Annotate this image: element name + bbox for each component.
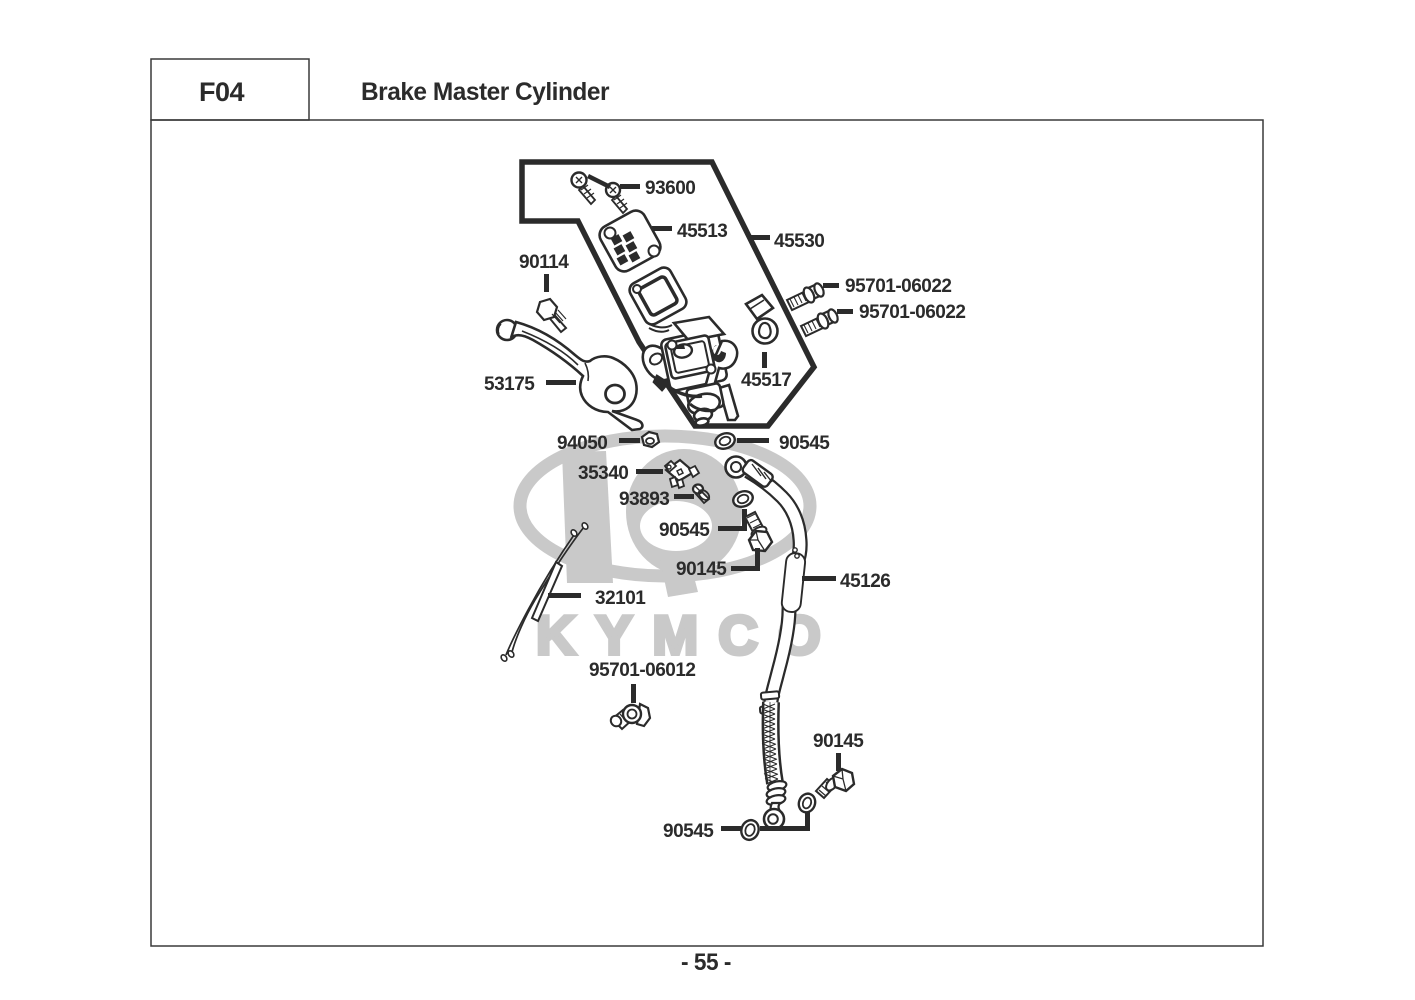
svg-text:35340: 35340 — [578, 463, 628, 484]
svg-text:95701-06022: 95701-06022 — [859, 302, 966, 323]
svg-text:90114: 90114 — [519, 252, 569, 273]
svg-text:53175: 53175 — [484, 374, 535, 395]
svg-text:95701-06012: 95701-06012 — [589, 660, 696, 681]
svg-text:95701-06022: 95701-06022 — [845, 276, 952, 297]
svg-text:F04: F04 — [199, 77, 245, 107]
svg-text:45513: 45513 — [677, 221, 727, 242]
svg-text:93600: 93600 — [645, 178, 695, 199]
svg-text:45517: 45517 — [741, 370, 791, 391]
svg-text:Brake Master Cylinder: Brake Master Cylinder — [361, 78, 610, 106]
svg-text:94050: 94050 — [557, 433, 607, 454]
svg-text:90145: 90145 — [813, 731, 864, 752]
svg-text:45126: 45126 — [840, 571, 890, 592]
svg-text:90145: 90145 — [676, 559, 727, 580]
svg-text:90545: 90545 — [659, 520, 710, 541]
svg-text:93893: 93893 — [619, 489, 669, 510]
svg-text:90545: 90545 — [663, 821, 714, 842]
svg-text:- 55 -: - 55 - — [681, 949, 731, 976]
svg-text:32101: 32101 — [595, 588, 646, 609]
svg-text:45530: 45530 — [774, 231, 824, 252]
svg-text:90545: 90545 — [779, 433, 830, 454]
